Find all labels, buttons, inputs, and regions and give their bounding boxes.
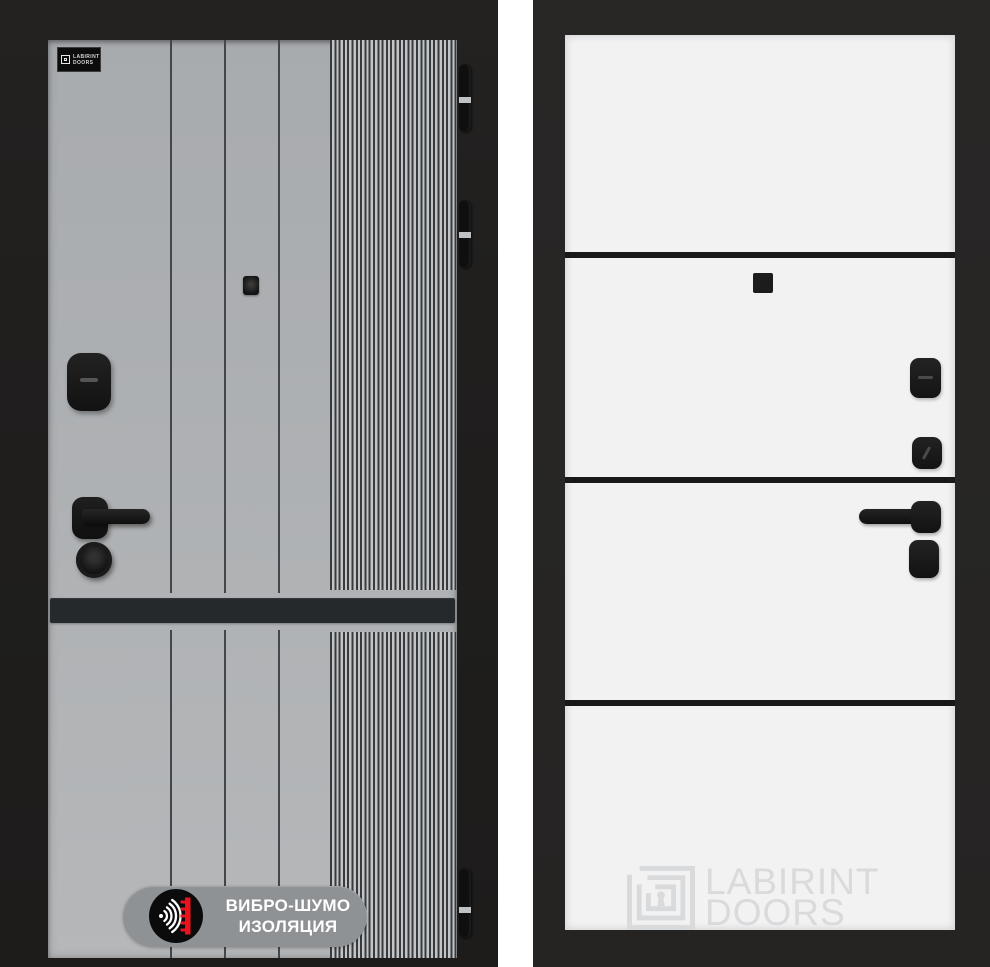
panel-seam xyxy=(170,40,172,593)
keyhole-slot xyxy=(80,378,98,382)
divider-line xyxy=(565,700,955,706)
divider-line xyxy=(565,252,955,258)
lock-plate xyxy=(909,540,939,578)
hinge-top xyxy=(459,64,471,132)
door-exterior-unit: LABIRINT DOORS xyxy=(0,0,498,967)
keyhole-cover xyxy=(910,358,941,398)
hinge-pin xyxy=(459,97,471,103)
brand-plate-text: LABIRINT DOORS xyxy=(73,54,100,66)
door-handle xyxy=(82,509,150,524)
brand-watermark-text: LABIRINT DOORS xyxy=(705,866,880,928)
brand-plate: LABIRINT DOORS xyxy=(57,47,101,72)
brand-watermark: LABIRINT DOORS xyxy=(625,865,880,931)
labirint-logo-icon xyxy=(61,55,70,64)
thumb-turn-slot xyxy=(922,446,931,460)
soundproofing-badge-text: ВИБРО-ШУМО ИЗОЛЯЦИЯ xyxy=(215,895,361,937)
accent-stripe xyxy=(50,598,455,623)
door-viewer xyxy=(753,273,773,293)
hinge-pin xyxy=(459,907,471,913)
labyrinth-keyhole-icon xyxy=(625,865,697,931)
badge-line-2: ИЗОЛЯЦИЯ xyxy=(215,916,361,937)
sound-wave-insulation-icon xyxy=(148,888,204,944)
thumb-turn xyxy=(912,437,942,469)
lock-knob xyxy=(76,542,112,578)
door-handle xyxy=(859,509,917,524)
door-leaf-exterior: LABIRINT DOORS xyxy=(48,40,457,958)
door-leaf-interior: LABIRINT DOORS xyxy=(565,35,955,930)
keyhole-cover xyxy=(67,353,111,411)
hinge-middle xyxy=(459,200,471,268)
ribbed-texture xyxy=(330,40,457,590)
panel-seam xyxy=(224,40,226,593)
handle-base xyxy=(911,501,941,533)
door-interior-unit: LABIRINT DOORS xyxy=(533,0,990,967)
soundproofing-badge: ВИБРО-ШУМО ИЗОЛЯЦИЯ xyxy=(123,886,367,947)
door-viewer xyxy=(243,276,259,295)
door-product-photo: LABIRINT DOORS xyxy=(0,0,990,967)
badge-line-1: ВИБРО-ШУМО xyxy=(215,895,361,916)
hinge-bottom xyxy=(459,868,471,938)
panel-seam xyxy=(278,40,280,593)
keyhole-slot xyxy=(918,376,933,379)
divider-line xyxy=(565,477,955,483)
hinge-pin xyxy=(459,232,471,238)
